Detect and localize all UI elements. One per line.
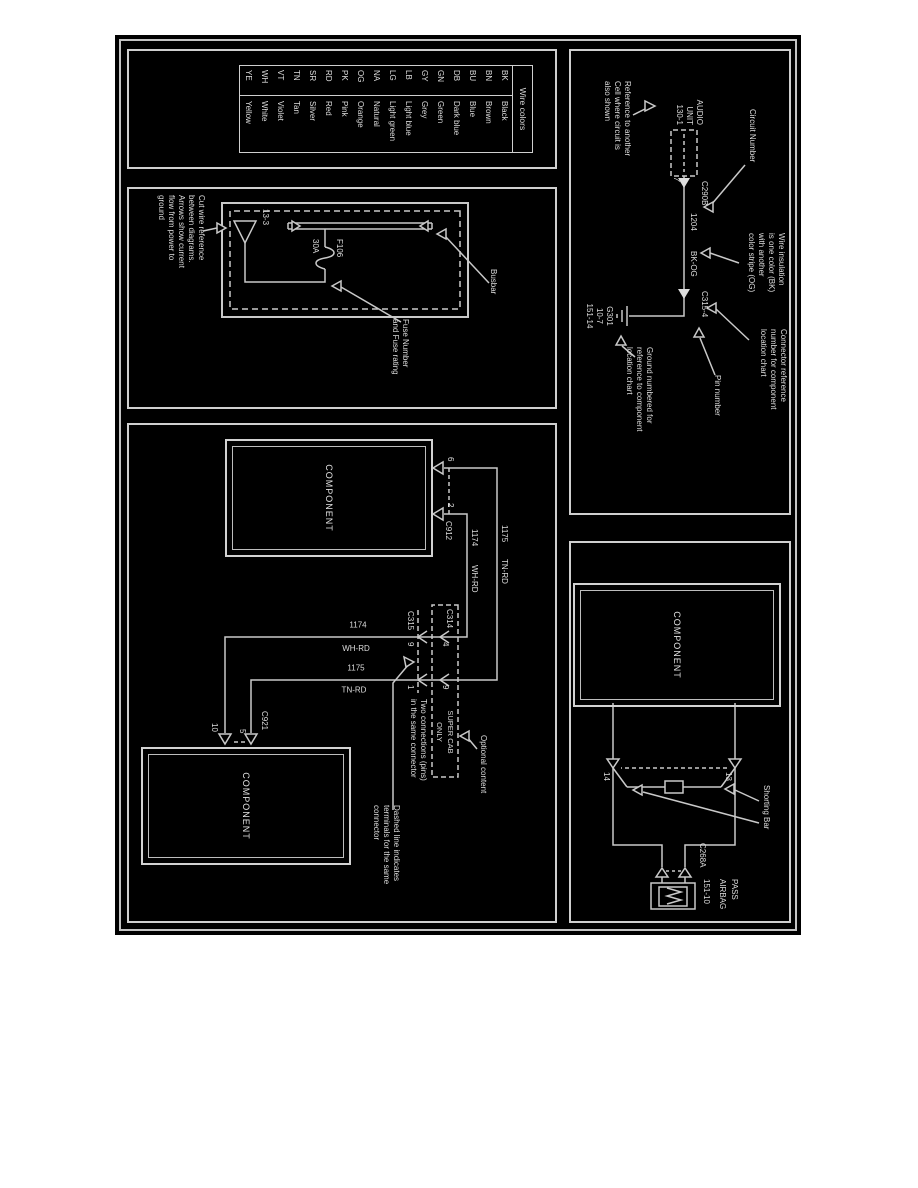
pin-13: 13 [723, 772, 733, 781]
pin-6: 6 [445, 457, 455, 461]
wire-color-name: Blue [464, 96, 480, 152]
ground-symbol [617, 306, 627, 326]
callout-wire-insulation: Wire insulation is one color (BK) with a… [746, 233, 786, 315]
fuse-rating: 30A [310, 239, 320, 253]
wire-color-row: NANatural [368, 66, 384, 152]
wire-color-code: NA [368, 66, 384, 96]
fuse-panel-wiring [203, 203, 489, 322]
wire-color-row: VTViolet [272, 66, 288, 152]
wire-color-row: GYGrey [416, 66, 432, 152]
airbag-name-1: PASS [729, 879, 739, 900]
connector-c314: C314 [444, 609, 454, 628]
connector-c268a: C268A [697, 843, 707, 867]
component-2-box: COMPONENT [141, 747, 351, 865]
pin-10: 10 [209, 723, 219, 732]
callout-ground-note: Ground numbered for reference to compone… [624, 347, 654, 459]
component-1-box: COMPONENT [225, 439, 433, 557]
circuit-1204: 1204 [688, 213, 698, 231]
wire-1174-number: 1174 [469, 529, 479, 546]
wire-1174-number-vertical: 1174 [349, 621, 366, 631]
rotated-diagram-canvas: COMPONENT COMPONENT COMPONENT Wire color… [115, 35, 801, 935]
callout-arrowhead [616, 336, 626, 345]
wire-colors-rows: BKBlackBNBrownBUBlueDBDark blueGNGreenGY… [240, 66, 512, 152]
wire-color-code: BU [464, 66, 480, 96]
callout-shorting-bar: Shorting Bar [761, 785, 771, 829]
wiring-diagram-area: COMPONENT COMPONENT COMPONENT Wire color… [115, 35, 801, 935]
wire-color-name: Black [496, 96, 512, 152]
wire-color-row: BKBlack [496, 66, 512, 152]
callout-arrowhead [645, 101, 655, 111]
component-label: COMPONENT [672, 611, 682, 679]
wire-color-row: WHWhite [256, 66, 272, 152]
wire-color-code: VT [272, 66, 288, 96]
callout-arrowhead [404, 657, 414, 667]
callout-connector-ref: Connector reference number for component… [758, 329, 788, 439]
wire-color-code: SR [304, 66, 320, 96]
callout-reference: Reference to another Cell where circuit … [602, 81, 632, 177]
pin-9-c314: 9 [440, 685, 450, 689]
wire-color-row: BUBlue [464, 66, 480, 152]
wire-color-name: White [256, 96, 272, 152]
callout-arrowhead [437, 229, 446, 239]
callout-arrowhead [694, 328, 704, 337]
wire-1174-color-vertical: WH-RD [342, 644, 370, 654]
pin-14: 14 [601, 772, 611, 781]
pin-5: 5 [237, 729, 247, 733]
shorting-bar-symbol [613, 768, 735, 793]
wire-color-name: Light blue [400, 96, 416, 152]
wire-color-code: LB [400, 66, 416, 96]
callout-circuit-number: Circuit Number [747, 109, 757, 162]
callout-dashed-line: Dashed line indicates terminals for the … [371, 805, 401, 907]
callout-arrowhead [701, 248, 710, 258]
connector-c912: C912 [443, 521, 453, 540]
cut-wire-ref-id: 13-3 [260, 209, 270, 225]
wire-color-name: Brown [480, 96, 496, 152]
callout-busbar: Busbar [488, 269, 498, 294]
wire-color-name: Red [320, 96, 336, 152]
callout-arrowhead [460, 731, 469, 741]
callout-cut-wire: Cut wire reference between diagrams. Arr… [156, 195, 206, 307]
wire-1174-color: WH-RD [469, 565, 479, 593]
wire-color-code: PK [336, 66, 352, 96]
wire-color-row: LGLight green [384, 66, 400, 152]
wire-color-row: PKPink [336, 66, 352, 152]
airbag-squib-symbol [651, 883, 695, 909]
wire-color-name: Pink [336, 96, 352, 152]
airbag-component-box: COMPONENT [573, 583, 781, 707]
wire-colors-table: Wire colors BKBlackBNBrownBUBlueDBDark b… [239, 65, 533, 153]
callout-fuse-number: Fuse Number and Fuse rating [390, 319, 410, 403]
callout-two-connections: Two connections (pins) in the same conne… [408, 699, 428, 803]
wire-color-code: GN [432, 66, 448, 96]
wire-color-row: SRSilver [304, 66, 320, 152]
wire-color-name: Tan [288, 96, 304, 152]
callout-arrowhead [725, 784, 734, 794]
connector-b-arrow [678, 289, 690, 299]
wire-color-row: DBDark blue [448, 66, 464, 152]
wire-color-name: Natural [368, 96, 384, 152]
pin-9-c315: 9 [405, 642, 415, 646]
pin-7: 7 [671, 177, 681, 181]
audio-unit-name: AUDIO UNIT 130-1 [674, 79, 704, 125]
pin-1: 1 [405, 685, 415, 689]
wire-color-name: Light green [384, 96, 400, 152]
wire-color-row: RDRed [320, 66, 336, 152]
wire-color-row: TNTan [288, 66, 304, 152]
wire-color-code: LG [384, 66, 400, 96]
callout-optional-content: Optional content [478, 735, 488, 793]
wire-color-name: Green [432, 96, 448, 152]
component-label: COMPONENT [324, 464, 334, 532]
pin-2: 2 [445, 503, 455, 507]
audio-panel-wiring [616, 101, 749, 375]
connector-c921: C921 [259, 711, 269, 730]
fuse-number: F106 [334, 239, 344, 257]
wire-color-code: RD [320, 66, 336, 96]
ground-g301: G301 10-7 151-14 [584, 292, 614, 340]
wire-color-name: Dark blue [448, 96, 464, 152]
wire-color-code: BK [496, 66, 512, 96]
wire-color-code: BN [480, 66, 496, 96]
wire-color-row: BNBrown [480, 66, 496, 152]
wire-1175-color-vertical: TN-RD [342, 685, 367, 695]
callout-arrowhead [332, 281, 341, 291]
wire-color-row: OGOrange [352, 66, 368, 152]
connector-c315: C315 [405, 611, 415, 630]
connector-c315-4: C315-4 [699, 291, 709, 317]
pin-4: 4 [440, 642, 450, 646]
wire-1175-color: TN-RD [499, 559, 509, 584]
wire-color-name: Violet [272, 96, 288, 152]
scanned-manual-page: COMPONENT COMPONENT COMPONENT Wire color… [0, 0, 918, 1188]
wire-colors-title: Wire colors [512, 66, 532, 152]
busbar-symbol [288, 221, 432, 231]
super-cab-only: SUPER CAB ONLY [434, 691, 456, 773]
wire-color-bk-og: BK-OG [688, 251, 698, 277]
wire-color-name: Orange [352, 96, 368, 152]
wire-color-code: OG [352, 66, 368, 96]
callout-pin-number: Pin number [712, 375, 722, 416]
component-label: COMPONENT [241, 772, 251, 840]
wire-color-name: Silver [304, 96, 320, 152]
wire-color-name: Yellow [240, 96, 256, 152]
cut-wire-triangle [234, 221, 256, 243]
wire-color-code: GY [416, 66, 432, 96]
wire-1175-number-vertical: 1175 [347, 664, 364, 674]
wire-color-row: LBLight blue [400, 66, 416, 152]
wire-color-row: GNGreen [432, 66, 448, 152]
wire-color-code: TN [288, 66, 304, 96]
wire-1175-number: 1175 [499, 525, 509, 542]
wire-color-code: WH [256, 66, 272, 96]
wire-color-code: DB [448, 66, 464, 96]
wire-color-code: YE [240, 66, 256, 96]
connector-c290b: C290B [699, 181, 709, 205]
airbag-location-ref: 151-10 [701, 879, 711, 904]
wire-color-name: Grey [416, 96, 432, 152]
wire-color-row: YEYellow [240, 66, 256, 152]
airbag-name-2: AIRBAG [717, 879, 727, 909]
